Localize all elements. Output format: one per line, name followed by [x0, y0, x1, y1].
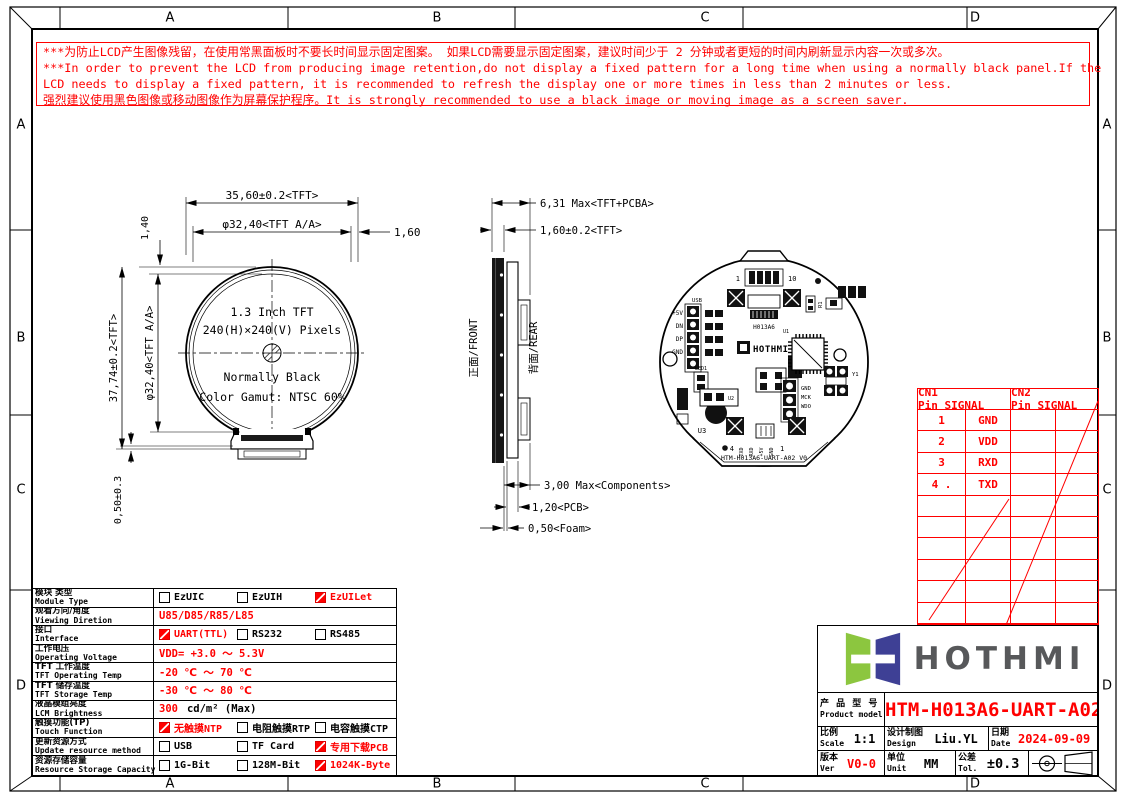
dim-right-gap: 1,60	[394, 226, 421, 239]
dim-top-gap: 1,40	[140, 216, 151, 240]
pin-cell: 3	[918, 453, 966, 474]
pin-cell: 1	[918, 410, 966, 431]
spec-option: EzUIC	[159, 592, 237, 603]
signal-cell	[1056, 474, 1098, 495]
tolerance-cell: 公差Tol. ±0.3	[955, 751, 1028, 776]
date-cell: 日期Date 2024-09-09	[988, 727, 1097, 750]
front-label-size: 1.3 Inch TFT	[230, 305, 313, 319]
spec-value: -30 ℃ ～ 80 ℃	[159, 683, 252, 698]
pcb-u2-label: U2	[728, 396, 734, 402]
unit-cell: 单位Unit MM	[884, 751, 955, 776]
logo-row: HOTHMI	[818, 626, 1097, 692]
front-side-label: 正面/FRONT	[468, 318, 480, 378]
projection-symbol-cell	[1028, 751, 1097, 776]
pcb-pin4-bottom: 4	[730, 445, 734, 453]
pcb-mck-label: MCK	[801, 395, 812, 401]
dim-total-thickness: 6,31 Max<TFT+PCBA>	[540, 198, 654, 210]
spec-value: VDD= +3.0 ～ 5.3V	[159, 646, 264, 661]
spec-option: USB	[159, 741, 237, 752]
tolerance-value: ±0.3	[978, 756, 1028, 772]
spec-option: 无触摸NTP	[159, 720, 237, 735]
signal-cell: RXD	[966, 453, 1011, 474]
pcb-dn-label: DN	[676, 323, 684, 330]
checkbox-icon	[237, 760, 248, 771]
spec-value-red: 300	[159, 703, 178, 715]
signal-cell	[1056, 410, 1098, 431]
spec-row-interface: 接口Interface UART(TTL) RS232 RS485	[33, 626, 396, 645]
pcb-led1-label: LED1	[695, 366, 707, 372]
front-view: 1.3 Inch TFT 240(H)×240(V) Pixels Normal…	[108, 189, 421, 524]
pin-cell	[1011, 453, 1056, 474]
pcb-board-text: HTM-H013A6-UART-A02 V0	[721, 454, 807, 462]
spec-option: UART(TTL)	[159, 629, 237, 640]
checkbox-icon	[237, 741, 248, 752]
dim-tft-thickness: 1,60±0.2<TFT>	[540, 225, 622, 237]
spec-table: 模块 类型Module Type EzUIC EzUIH EzUILet 观看方…	[32, 588, 397, 776]
checkbox-icon	[159, 629, 170, 640]
dim-foam: 0,50<Foam>	[528, 523, 591, 535]
side-view: 6,31 Max<TFT+PCBA> 1,60±0.2<TFT> 正面/FRON…	[468, 198, 670, 535]
pcb-u3-label: U3	[698, 427, 706, 435]
pin-cell	[1011, 474, 1056, 495]
datasheet-page: A B C D A B C D A B C D A B C D ***为防止LC…	[0, 0, 1125, 798]
spec-row-operating-temp: TFT 工作温度TFT Operating Temp -20 ℃ ～ 70 ℃	[33, 663, 396, 682]
pcb-dp-label: DP	[676, 336, 684, 343]
spec-row-storage-capacity: 资源存储容量Resource Storage Capacity 1G-Bit 1…	[33, 756, 396, 775]
checkbox-icon	[159, 592, 170, 603]
spec-option: 1G-Bit	[159, 760, 237, 771]
signal-cell: TXD	[966, 474, 1011, 495]
checkbox-icon	[159, 760, 170, 771]
pcb-r1-label: R1	[818, 301, 824, 308]
spec-row-update-method: 更新资源方式Update resource method USB TF Card…	[33, 738, 396, 757]
scale-cell: 比例Scale 1:1	[818, 727, 884, 750]
pcb-driver-label: H013A6	[753, 324, 775, 331]
dim-height-tft: 37,74±0.2<TFT>	[108, 314, 120, 403]
design-cell: 设计制图Design Liu.YL	[884, 727, 988, 750]
hothmi-logo-icon	[844, 631, 902, 687]
spec-value: -20 ℃ ～ 70 ℃	[159, 665, 252, 680]
spec-option: 专用下载PCB	[315, 739, 393, 754]
spec-row-voltage: 工作电压Operating Voltage VDD= +3.0 ～ 5.3V	[33, 645, 396, 664]
title-block: HOTHMI 产 品 型 号Product model HTM-H013A6-U…	[817, 625, 1098, 776]
spec-value-unit: cd/m² (Max)	[187, 703, 257, 715]
pcb-pin1-top: 1	[736, 275, 740, 283]
spec-option: 128M-Bit	[237, 760, 315, 771]
signal-cell: VDD	[966, 431, 1011, 452]
checkbox-icon	[315, 722, 326, 733]
spec-row-brightness: 液晶模组亮度LCM Brightness 300cd/m² (Max)	[33, 701, 396, 720]
checkbox-icon	[315, 629, 326, 640]
scale-value: 1:1	[845, 732, 884, 746]
checkbox-icon	[237, 592, 248, 603]
dim-components: 3,00 Max<Components>	[544, 480, 670, 492]
rear-side-label: 背面/REAR	[527, 321, 540, 374]
pin-signal-table: CN1 Pin_SIGNAL CN2 Pin_SIGNAL 1 GND 2 VD…	[917, 388, 1099, 625]
checkbox-icon	[315, 592, 326, 603]
pin-cell	[1011, 431, 1056, 452]
pcb-wdo-label: WDO	[801, 404, 811, 410]
cn2-header: CN2 Pin_SIGNAL	[1011, 389, 1098, 410]
design-value: Liu.YL	[924, 732, 988, 746]
spec-row-module-type: 模块 类型Module Type EzUIC EzUIH EzUILet	[33, 589, 396, 608]
spec-option: EzUIH	[237, 592, 315, 603]
pcb-pin10-top: 10	[788, 275, 796, 283]
date-value: 2024-09-09	[1011, 732, 1097, 746]
pin-cell	[1011, 410, 1056, 431]
signal-cell	[1056, 453, 1098, 474]
dim-pcb: 1,20<PCB>	[532, 502, 589, 514]
brand-name: HOTHMI	[902, 641, 1097, 677]
checkbox-icon	[159, 741, 170, 752]
pin-cell: 4 .	[918, 474, 966, 495]
pcb-brand-silk: HOTHMI	[753, 345, 789, 355]
spec-option: TF Card	[237, 741, 315, 752]
front-label-gamut: Color Gamut: NTSC 60%	[199, 390, 344, 404]
version-cell: 版本Ver V0-0	[818, 751, 884, 776]
checkbox-icon	[237, 629, 248, 640]
rear-view: 1 10 H013A6 R1	[660, 251, 868, 466]
spec-option: 电阻触摸RTP	[237, 720, 315, 735]
checkbox-icon	[159, 722, 170, 733]
spec-option: EzUILet	[315, 592, 393, 603]
spec-option: 1024K-Byte	[315, 760, 393, 771]
pcb-pin1-bottom: 1	[780, 445, 784, 453]
dim-width-tft: 35,60±0.2<TFT>	[226, 189, 319, 202]
pcb-usb-label: USB	[692, 298, 703, 304]
pcb-y1-label: Y1	[852, 372, 859, 378]
dim-aa-height: φ32,40<TFT A/A>	[144, 306, 156, 401]
product-model-label: 产 品 型 号Product model	[818, 693, 884, 726]
signal-cell	[1056, 431, 1098, 452]
spec-option: RS485	[315, 629, 393, 640]
pin-cell: 2	[918, 431, 966, 452]
spec-row-touch: 触摸功能(TP)Touch Function 无触摸NTP 电阻触摸RTP 电容…	[33, 719, 396, 738]
checkbox-icon	[237, 722, 248, 733]
dim-aa-width: φ32,40<TFT A/A>	[222, 218, 322, 231]
checkbox-icon	[315, 760, 326, 771]
checkbox-icon	[315, 741, 326, 752]
front-label-resolution: 240(H)×240(V) Pixels	[203, 323, 341, 337]
unit-value: MM	[907, 757, 955, 771]
spec-option: RS232	[237, 629, 315, 640]
spec-option: 电容触摸CTP	[315, 720, 393, 735]
cn1-header: CN1 Pin_SIGNAL	[918, 389, 1011, 410]
spec-value: U85/D85/R85/L85	[159, 610, 254, 622]
front-label-mode: Normally Black	[224, 370, 321, 384]
version-value: V0-0	[839, 757, 884, 771]
dim-bottom-gap: 0,50±0.3	[113, 476, 124, 524]
pcb-gnd-right-label: GND	[801, 386, 811, 392]
pcb-5v-label: +5V	[672, 310, 683, 317]
third-angle-projection-icon	[1031, 751, 1095, 776]
spec-row-viewing-direction: 观看方向/角度Viewing Diretion U85/D85/R85/L85	[33, 608, 396, 627]
product-model-value: HTM-H013A6-UART-A02	[885, 699, 1097, 721]
spec-row-storage-temp: TFT 储存温度TFT Storage Temp -30 ℃ ～ 80 ℃	[33, 682, 396, 701]
signal-cell: GND	[966, 410, 1011, 431]
pcb-u1-label: U1	[783, 329, 789, 335]
